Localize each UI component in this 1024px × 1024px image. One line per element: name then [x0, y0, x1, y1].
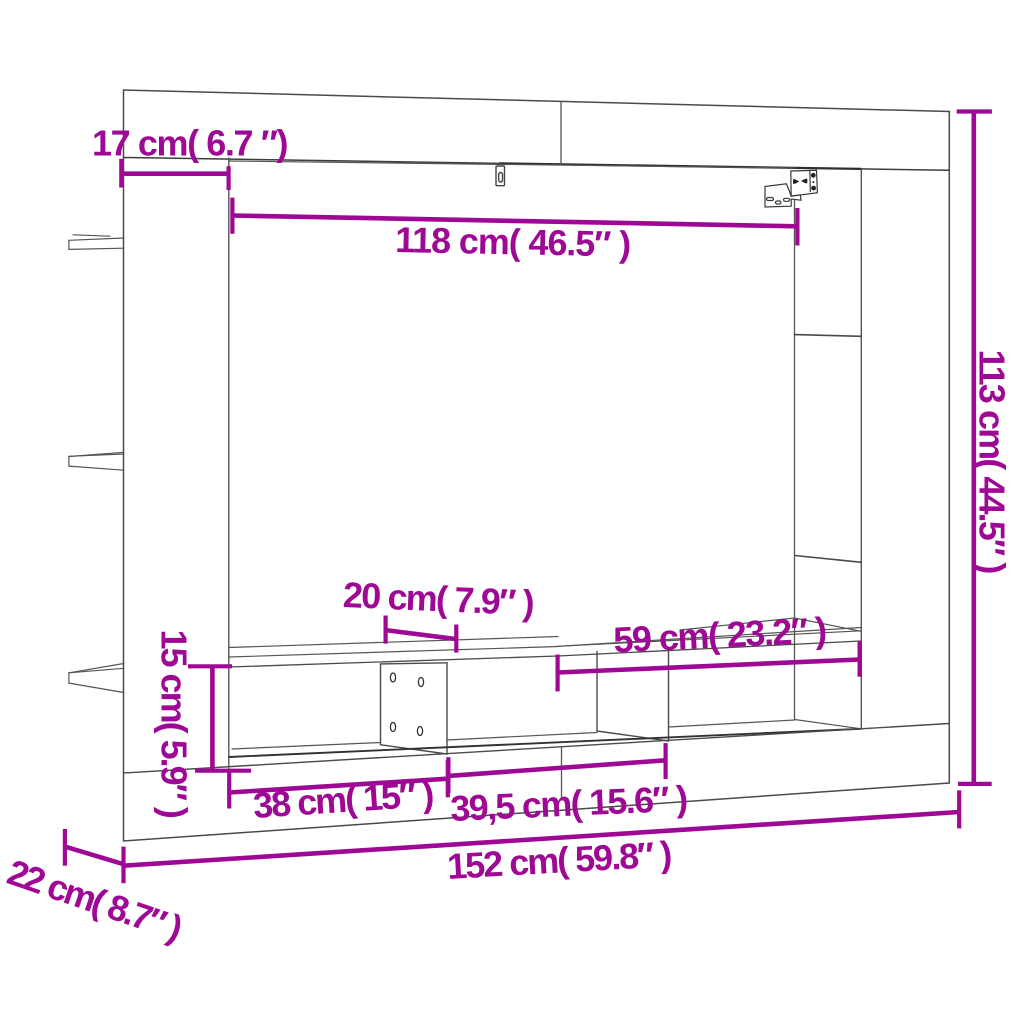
- svg-text:113 cm( 44.5″ ): 113 cm( 44.5″ ): [972, 350, 1013, 574]
- svg-text:118 cm( 46.5″ ): 118 cm( 46.5″ ): [395, 219, 631, 265]
- svg-text:20 cm( 7.9″ ): 20 cm( 7.9″ ): [342, 574, 534, 623]
- svg-text:15 cm( 5.9″ ): 15 cm( 5.9″ ): [154, 630, 195, 818]
- svg-text:17 cm( 6.7 ″): 17 cm( 6.7 ″): [92, 123, 288, 164]
